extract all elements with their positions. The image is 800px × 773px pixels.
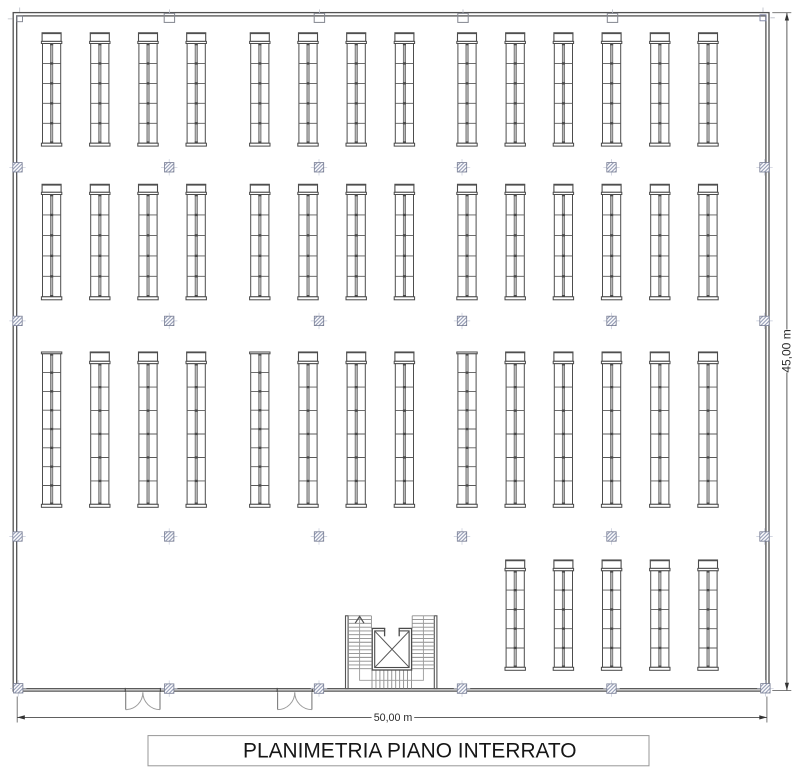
- svg-text:45,00 m: 45,00 m: [780, 329, 794, 372]
- svg-text:PLANIMETRIA PIANO INTERRATO: PLANIMETRIA PIANO INTERRATO: [243, 740, 577, 763]
- svg-text:50,00 m: 50,00 m: [374, 712, 413, 724]
